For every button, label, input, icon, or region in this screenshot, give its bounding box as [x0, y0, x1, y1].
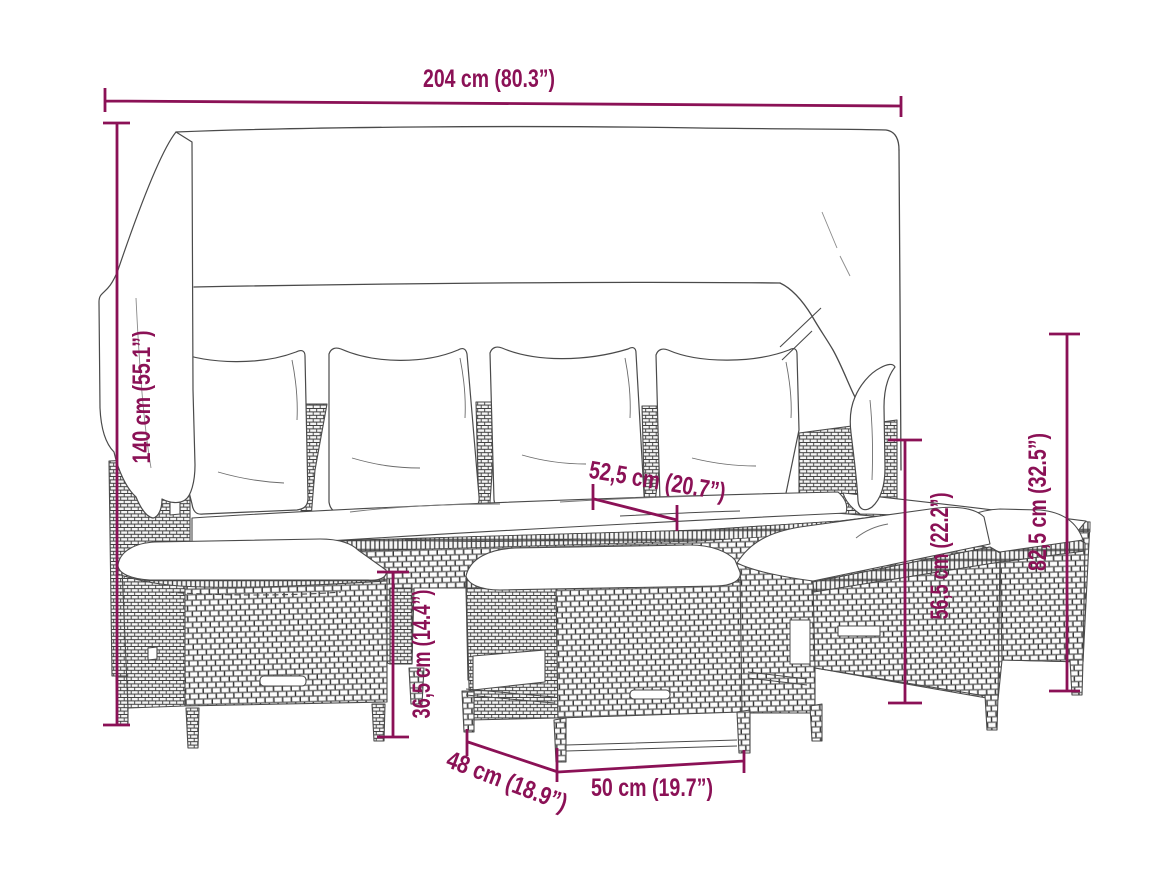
svg-text:82,5 cm (32.5”): 82,5 cm (32.5”)	[1024, 433, 1052, 571]
svg-text:140 cm (55.1”): 140 cm (55.1”)	[128, 331, 156, 464]
svg-text:50 cm (19.7”): 50 cm (19.7”)	[591, 774, 713, 802]
svg-text:36,5 cm (14.4”): 36,5 cm (14.4”)	[408, 590, 436, 719]
svg-text:204 cm (80.3”): 204 cm (80.3”)	[423, 65, 555, 93]
svg-text:56,5 cm (22.2”): 56,5 cm (22.2”)	[926, 493, 954, 620]
